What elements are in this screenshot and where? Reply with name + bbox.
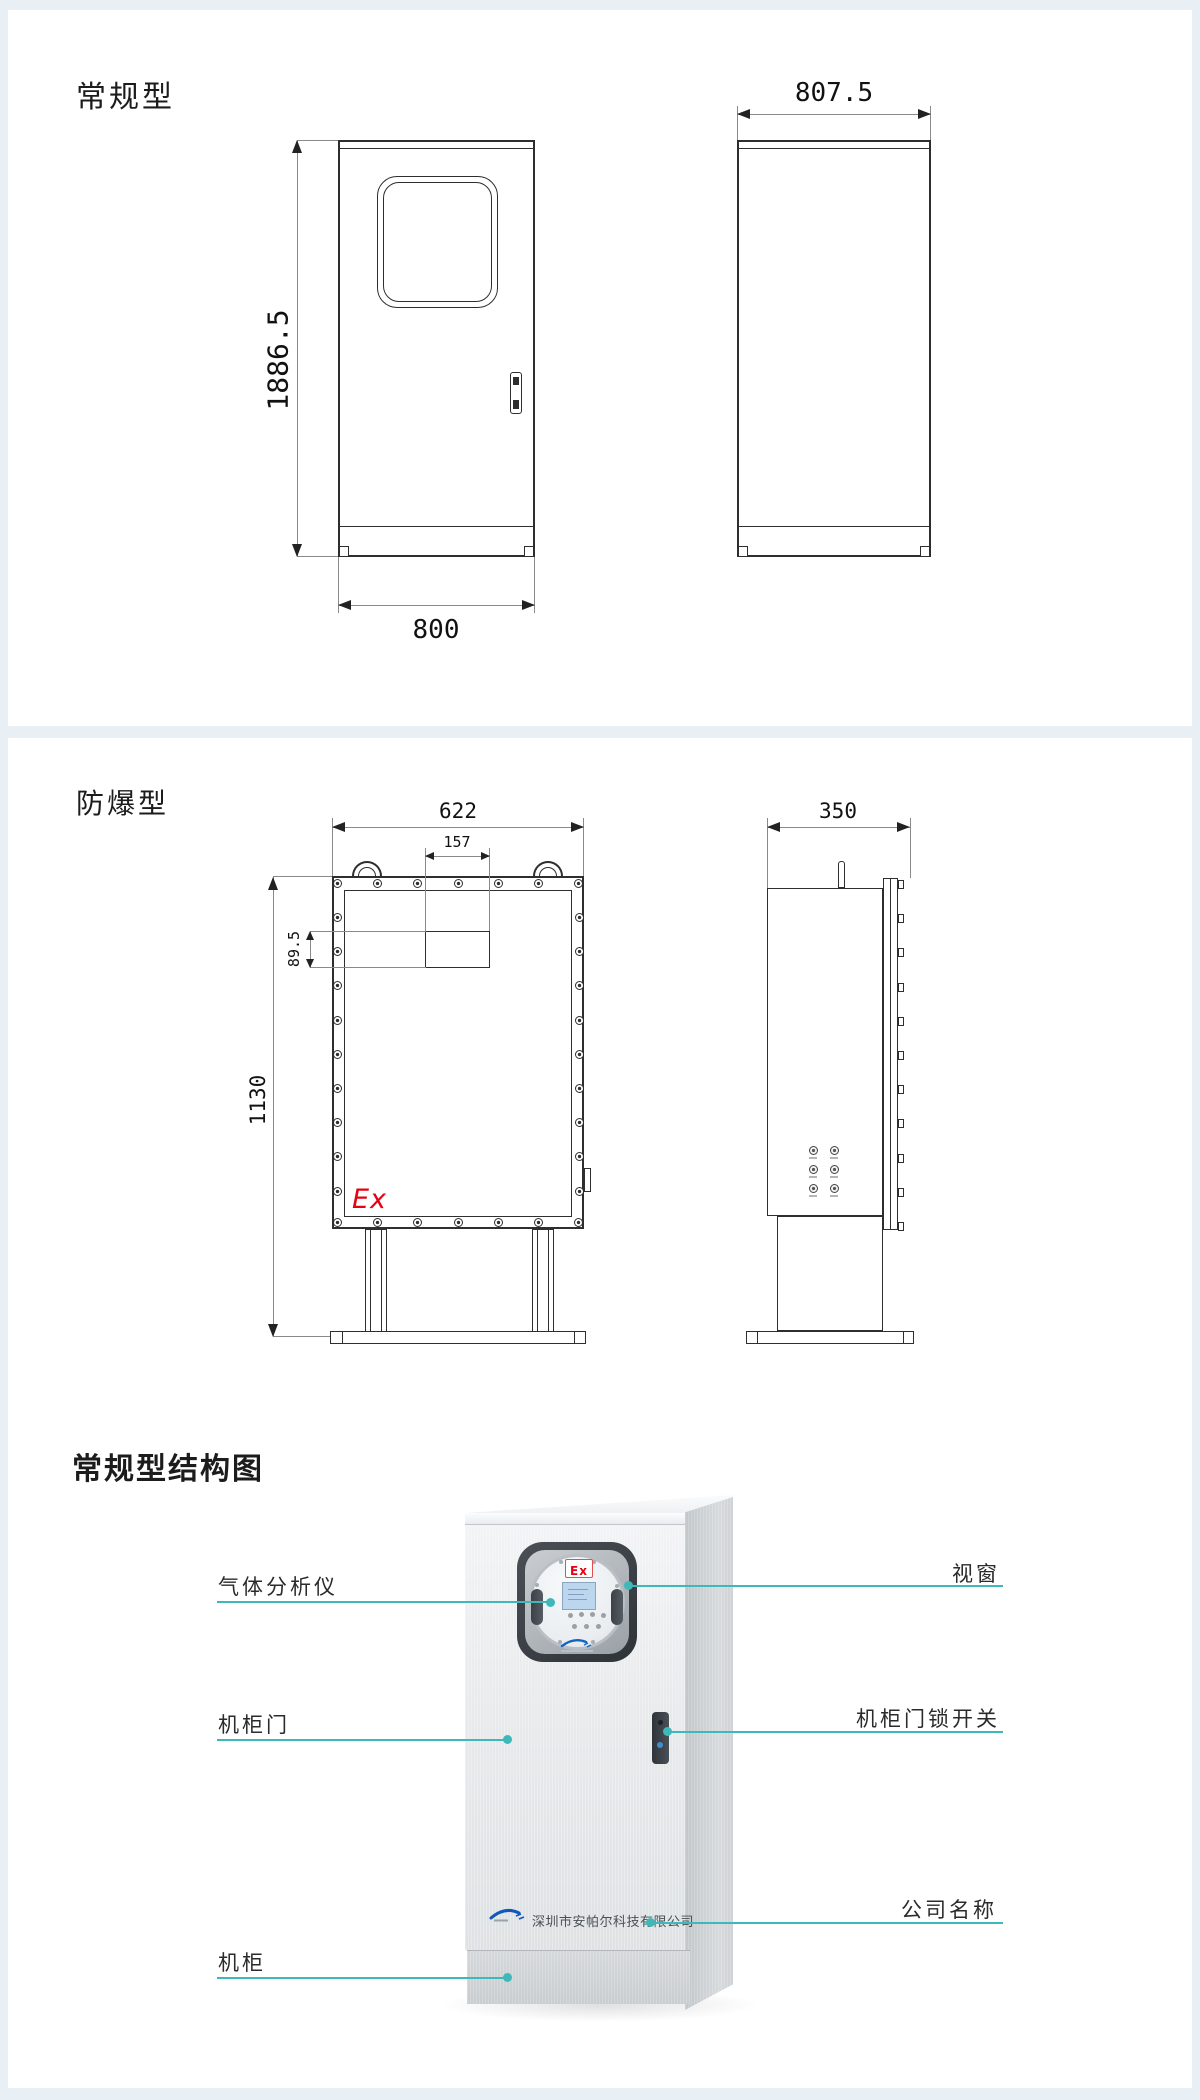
explosion-box-height-dim-label: 89.5 <box>285 931 303 967</box>
callout-label-cabinet: 机柜 <box>218 1947 266 1977</box>
regular-side-body <box>737 140 931 557</box>
callout-line-company-name <box>650 1922 1003 1924</box>
regular-depth-dim-label: 807.5 <box>795 78 873 108</box>
regular-section-title: 常规型 <box>76 72 175 116</box>
callout-line-window <box>628 1585 1003 1587</box>
cable-gland-tag <box>809 1157 817 1159</box>
bolt-nub-icon <box>898 880 904 889</box>
explosion-leg-right <box>532 1229 554 1332</box>
company-name-text: 深圳市安帕尔科技有限公司 <box>532 1911 694 1930</box>
cabinet-top-strip <box>465 1513 685 1525</box>
bolt-icon <box>575 1187 584 1196</box>
callout-line-cabinet <box>217 1977 508 1979</box>
analyzer-button-icon <box>572 1624 577 1629</box>
regular-front-handle-slot <box>513 377 519 385</box>
bolt-icon <box>454 879 463 888</box>
cabinet-side-face <box>685 1497 733 2010</box>
callout-line-cabinet-door <box>217 1739 508 1741</box>
callout-label-door-lock-switch: 机柜门锁开关 <box>856 1703 1000 1733</box>
regular-front-plinth-line <box>339 526 534 527</box>
analyzer-logo-caption <box>561 1650 593 1652</box>
explosion-depth-dim-label: 350 <box>819 799 857 823</box>
analyzer-ex-text: Ex <box>570 1564 588 1578</box>
analyzer-button-icon <box>596 1624 601 1629</box>
callout-label-company-name: 公司名称 <box>901 1894 997 1924</box>
callout-dot-door-lock-switch <box>663 1727 672 1736</box>
analyzer-lcd-screen <box>562 1582 596 1610</box>
analyzer-button-icon <box>590 1612 595 1617</box>
bolt-icon <box>494 1218 503 1227</box>
explosion-width-dim-label: 622 <box>439 799 477 823</box>
company-logo-icon <box>488 1905 526 1923</box>
explosion-ex-mark: Ex <box>352 1184 387 1215</box>
regular-side-plinth-line <box>738 526 930 527</box>
explosion-height-dim-label: 1130 <box>246 1075 270 1126</box>
bolt-icon <box>534 879 543 888</box>
regular-front-handle-key <box>513 400 519 409</box>
regular-front-foot-notch-right <box>524 546 533 556</box>
regular-width-dim-label: 800 <box>413 615 460 645</box>
screw-icon <box>615 1584 619 1588</box>
regular-side-foot-notch-left <box>739 546 748 556</box>
bolt-nub-icon <box>898 1051 904 1060</box>
explosion-side-pedestal <box>777 1216 883 1331</box>
bolt-icon <box>575 1050 584 1059</box>
bolt-icon <box>333 913 342 922</box>
bolt-icon <box>333 1050 342 1059</box>
explosion-side-vent-pipe <box>838 861 845 888</box>
bolt-nub-icon <box>898 1119 904 1128</box>
cable-gland-icon <box>830 1146 839 1155</box>
cable-gland-icon <box>809 1165 818 1174</box>
page-border-top <box>0 0 1200 10</box>
analyzer-button-icon <box>584 1624 589 1629</box>
cabinet-door-lock <box>652 1712 669 1764</box>
cable-gland-icon <box>809 1146 818 1155</box>
bolt-icon <box>333 1084 342 1093</box>
analyzer-ex-plate: Ex <box>565 1559 593 1578</box>
bolt-icon <box>454 1218 463 1227</box>
callout-line-door-lock-switch <box>667 1731 1003 1733</box>
bolt-nub-icon <box>898 1188 904 1197</box>
regular-height-dim-label: 1886.5 <box>262 309 295 410</box>
bolt-nub-icon <box>898 1017 904 1026</box>
bolt-nub-icon <box>898 1154 904 1163</box>
page-border-bottom <box>0 2088 1200 2100</box>
callout-dot-cabinet-door <box>503 1735 512 1744</box>
explosion-hinge-tab <box>584 1168 591 1192</box>
regular-front-foot-notch-left <box>340 546 349 556</box>
callout-dot-window <box>624 1581 633 1590</box>
explosion-section-title: 防爆型 <box>76 782 169 822</box>
explosion-leg-left <box>365 1229 387 1332</box>
cable-gland-icon <box>809 1184 818 1193</box>
regular-front-toplip-line <box>339 148 534 149</box>
cable-gland-tag <box>809 1195 817 1197</box>
cable-gland-tag <box>830 1176 838 1178</box>
explosion-box-width-dim-label: 157 <box>443 833 470 851</box>
explosion-side-base-plate <box>746 1331 914 1344</box>
page-border-left <box>0 0 8 2100</box>
analyzer-logo-icon <box>560 1637 594 1649</box>
bolt-icon <box>575 1016 584 1025</box>
bolt-icon <box>534 1218 543 1227</box>
callout-label-window: 视窗 <box>952 1558 1000 1588</box>
structure-section-title: 常规型结构图 <box>72 1444 264 1488</box>
analyzer-handle-right <box>611 1589 623 1625</box>
analyzer-handle-left <box>531 1589 543 1625</box>
bolt-nub-icon <box>898 948 904 957</box>
bolt-nub-icon <box>898 1222 904 1231</box>
section-separator-band <box>0 726 1200 738</box>
regular-front-window-inner <box>383 182 492 302</box>
analyzer-button-icon <box>579 1612 584 1617</box>
callout-label-cabinet-door: 机柜门 <box>218 1709 290 1739</box>
bolt-icon <box>333 1218 342 1227</box>
cable-gland-tag <box>830 1157 838 1159</box>
screw-icon <box>559 1560 563 1564</box>
regular-side-foot-notch-right <box>920 546 929 556</box>
cable-gland-icon <box>830 1184 839 1193</box>
bolt-nub-icon <box>898 914 904 923</box>
cable-gland-icon <box>830 1165 839 1174</box>
explosion-front-base-plate <box>330 1331 586 1344</box>
regular-side-toplip-line <box>738 148 930 149</box>
analyzer-button-icon <box>601 1613 606 1618</box>
callout-label-gas-analyzer: 气体分析仪 <box>218 1571 338 1601</box>
callout-dot-gas-analyzer <box>546 1598 555 1607</box>
page-border-right <box>1192 0 1200 2100</box>
bolt-icon <box>333 1016 342 1025</box>
bolt-nub-icon <box>898 983 904 992</box>
bolt-icon <box>575 913 584 922</box>
callout-dot-cabinet <box>503 1973 512 1982</box>
callout-line-gas-analyzer <box>217 1601 551 1603</box>
callout-dot-company-name <box>646 1918 655 1927</box>
bolt-icon <box>333 879 342 888</box>
bolt-icon <box>494 879 503 888</box>
bolt-icon <box>333 1187 342 1196</box>
explosion-side-body <box>767 888 883 1216</box>
analyzer-button-icon <box>568 1613 573 1618</box>
bolt-icon <box>575 1084 584 1093</box>
explosion-junction-box <box>425 931 490 968</box>
cable-gland-tag <box>830 1195 838 1197</box>
cable-gland-tag <box>809 1176 817 1178</box>
bolt-nub-icon <box>898 1085 904 1094</box>
